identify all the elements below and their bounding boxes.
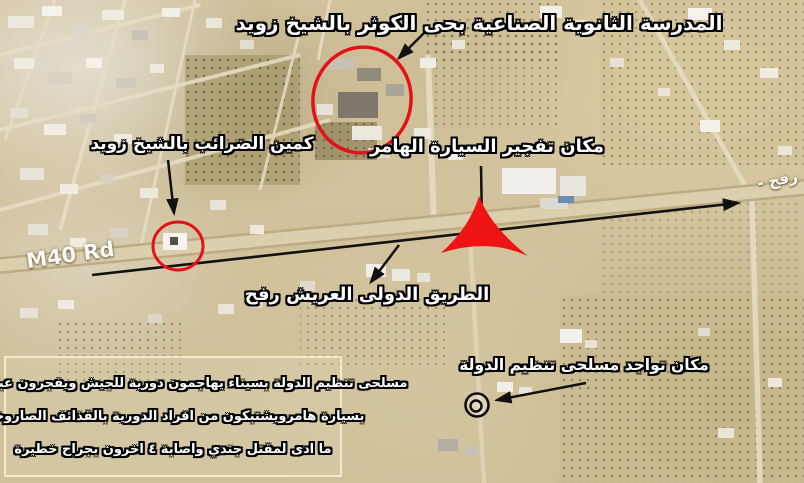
militants-arrow	[497, 383, 586, 400]
info-line-3: ما ادى لمقتل جندي واصابة ٤ اخرون بجراح خ…	[14, 442, 331, 458]
militants-spot-outer-circle	[466, 394, 489, 417]
road-direction-arrow	[92, 203, 738, 275]
tax-ambush-arrow	[168, 160, 174, 213]
annotated-satellite-map: M40 Rd - رفح المدرسة الثانوية الصناعية ب…	[0, 0, 804, 483]
tax-ambush-label: كمين الضرائب بالشيخ زويد	[90, 134, 313, 155]
hummer-explosion-label: مكان تفجير السيارة الهامر	[370, 136, 604, 159]
militants-location-label: مكان تواجد مسلحى تنظيم الدولة	[459, 356, 708, 375]
info-box: مسلحى تنظيم الدولة بسيناء يهاجمون دورية …	[4, 356, 342, 477]
international-road-label: الطريق الدولى العريش رفح	[245, 284, 490, 307]
tax-ambush-red-circle	[153, 222, 203, 270]
explosion-star-marker	[441, 196, 528, 256]
international-road-arrow	[371, 245, 399, 282]
info-line-2: بسيارة هامرويشتبكون من افراد الدورية بال…	[0, 409, 364, 425]
school-label: المدرسة الثانوية الصناعية بحى الكوثر بال…	[236, 11, 723, 36]
info-line-1: مسلحى تنظيم الدولة بسيناء يهاجمون دورية …	[0, 376, 407, 392]
